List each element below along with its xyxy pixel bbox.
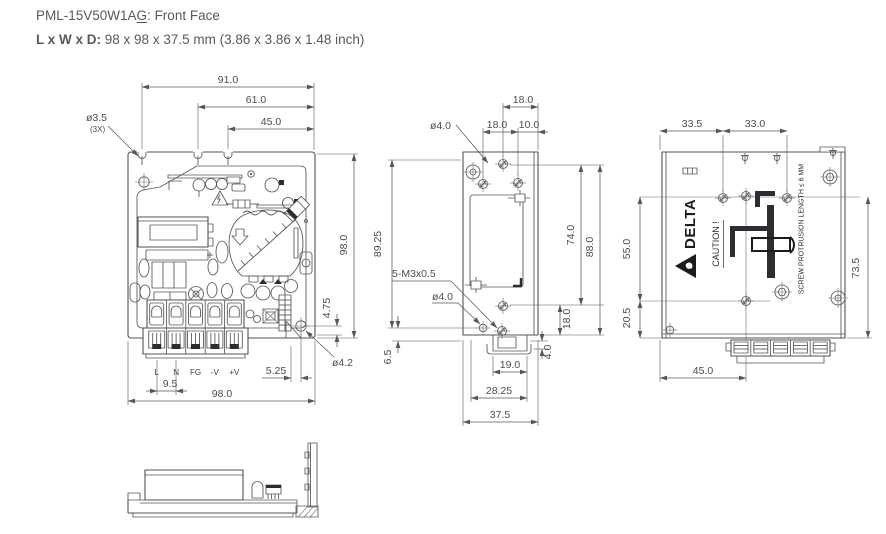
dim-terminal-pitch: 9.5 [163,378,178,390]
dim-width-45: 45.0 [261,116,282,128]
mount-notch [137,150,147,166]
label-hole-3-5: ø3.5 [86,112,107,124]
delta-logo: DELTA [675,199,699,278]
small-hole [663,323,677,337]
label-hole-3x: (3X) [90,125,105,134]
m3-hole [715,190,731,206]
dim-88: 88.0 [584,237,596,258]
warning-triangle-icon [212,191,228,205]
dim-73-5: 73.5 [850,258,862,279]
din-clip [487,335,531,354]
rear-notch [773,153,781,164]
dim-height-98: 98.0 [338,235,350,256]
dim-offset-4-75: 4.75 [321,298,333,319]
m3-hole [779,190,795,206]
hole-4-0-bottom [476,321,490,335]
dim-20-5: 20.5 [621,308,633,329]
dim-10: 10.0 [519,119,540,131]
dim-6-5: 6.5 [382,350,394,365]
mount-notch [223,150,233,166]
ladder-component [279,295,291,331]
dim-89-25: 89.25 [372,231,384,257]
front-dimensions: 91.0 61.0 45.0 ø3.5 (3X) 98.0 98.0 [86,74,358,405]
m3-hole [510,175,526,191]
dim-offset-5-25: 5.25 [266,365,287,377]
dim-33-5: 33.5 [682,118,703,130]
dim-28-25: 28.25 [486,385,512,397]
datasheet-page: PML-15V50W1AG: Front Face L x W x D: 98 … [0,0,886,534]
din-rail-latch [730,191,794,278]
dim-width-61: 61.0 [246,94,267,106]
down-arrow-icon [232,229,248,245]
front-terminal-block: L N FG -V +V [143,300,248,377]
label-hole-4-2: ø4.2 [332,357,353,369]
dim-width-91: 91.0 [218,74,239,86]
dim-33-0: 33.0 [745,118,766,130]
dim-37-5: 37.5 [490,409,511,421]
dim-18-mid: 18.0 [487,119,508,131]
brand-name: DELTA [682,199,699,249]
profile-ic [266,485,281,499]
m3-hole [495,298,511,314]
dim-19: 19.0 [500,359,521,371]
dim-18-bottom: 18.0 [561,309,573,330]
transformer-block [138,217,213,247]
label-hole-4-0-top: ø4.0 [430,120,451,132]
dim-4-0: 4.0 [542,345,554,360]
label-hole-4-0-bottom: ø4.0 [432,291,453,303]
m3-hole [495,156,511,172]
dim-18-top: 18.0 [513,94,534,106]
terminal-label-minusV: -V [211,368,220,377]
dim-bottom-width-98: 98.0 [212,388,233,400]
technical-drawing: L N FG -V +V 91.0 61.0 45.0 ø3.5 (3 [0,0,886,534]
bottom-profile-drawing [128,443,318,517]
dim-55-0: 55.0 [621,239,633,260]
dim-74: 74.0 [565,225,577,246]
relay-box [263,309,278,323]
profile-capacitor [252,482,263,499]
hole-4-0-top [463,162,483,182]
dim-45-0: 45.0 [693,365,714,377]
label-thread-spec: 5-M3x0.5 [392,268,436,280]
profile-bracket [296,443,318,517]
side-dimensions: 18.0 18.0 10.0 ø4.0 89.25 74.0 [372,94,604,426]
m3-hole [738,188,754,204]
caution-label: CAUTION ! [711,221,721,267]
rear-terminal-strip [726,340,835,363]
rear-view-drawing: DELTA CAUTION ! SCREW PROTRUSION LENGTH … [621,118,872,382]
hex-hole [820,167,840,187]
terminal-label-plusV: +V [229,368,240,377]
mount-notch [193,150,203,166]
side-view-drawing: 18.0 18.0 10.0 ø4.0 89.25 74.0 [372,94,604,426]
m3-hole [738,293,754,309]
screw-protrusion-note: SCREW PROTRUSION LENGTH ≤ 6 MM [799,164,806,294]
rear-notch [741,153,749,164]
m3-hole [475,176,491,192]
front-view-drawing: L N FG -V +V 91.0 61.0 45.0 ø3.5 (3 [86,74,358,405]
hex-hole [772,282,792,302]
terminal-label-FG: FG [190,368,201,377]
profile-transformer [145,470,243,500]
